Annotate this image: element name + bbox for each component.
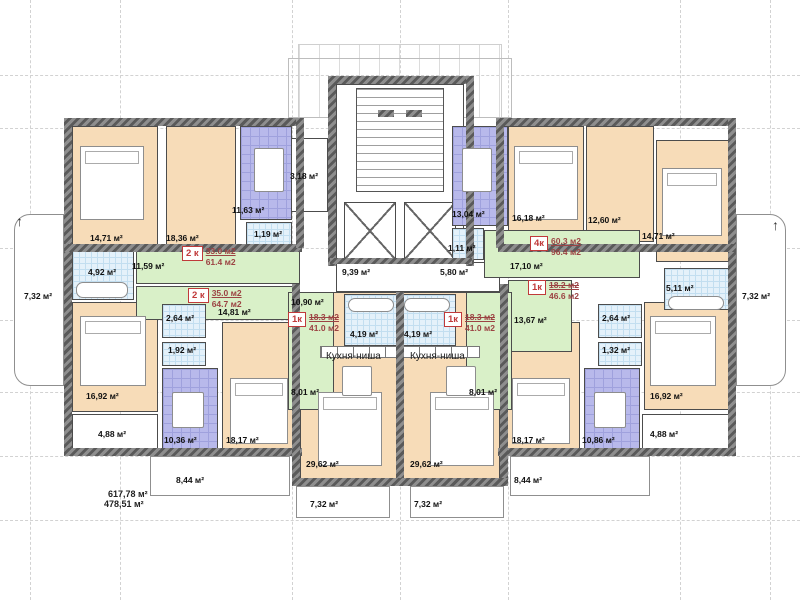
room-area-label: 16,92 м²	[650, 392, 683, 401]
room-area-label: 4,88 м²	[98, 430, 126, 439]
apartment-badge: 2 к35.0 м264.7 м2	[188, 288, 242, 309]
living-area-value: 18.3 м2	[309, 312, 339, 323]
room-area-label: 7,32 м²	[414, 500, 442, 509]
elevator-left	[344, 202, 396, 260]
bed-furniture	[80, 316, 146, 386]
apartment-type-code: 2 к	[182, 246, 203, 261]
room-area-label: 14,71 м²	[642, 232, 675, 241]
room-area-label: 12,60 м²	[588, 216, 621, 225]
apartment-area-values: 60.3 м296.4 м2	[551, 236, 581, 257]
wall-segment	[296, 118, 304, 248]
wall-segment	[406, 110, 422, 117]
room-area-label: 10,86 м²	[582, 436, 615, 445]
room-area-label: 1,32 м²	[602, 346, 630, 355]
table-furniture	[342, 366, 372, 396]
total-area-value: 96.4 м2	[551, 247, 581, 258]
room-area-label: 3,18 м²	[290, 172, 318, 181]
bed-furniture	[80, 146, 144, 220]
room-area-label: 18,17 м²	[226, 436, 259, 445]
floor-plan: 14,71 м²18,36 м²11,63 м²1,19 м²11,59 м²4…	[0, 0, 800, 600]
wall-segment	[292, 478, 508, 486]
wall-segment	[496, 118, 504, 248]
room-area-label: Кухня-ниша	[410, 352, 465, 362]
living-area-value: 33.0 м2	[206, 246, 236, 257]
bed-furniture	[514, 146, 578, 220]
apartment-badge: 1к18.2 м246.6 м2	[528, 280, 579, 301]
wall-segment	[328, 76, 336, 266]
tub-furniture	[668, 296, 724, 310]
wall-segment	[496, 118, 736, 126]
apartment-badge: 2 к33.0 м261.4 м2	[182, 246, 236, 267]
wall-segment	[64, 118, 72, 456]
grid-line-horizontal	[0, 520, 800, 521]
bed-furniture	[662, 168, 722, 236]
room-area-label: 8,44 м²	[176, 476, 204, 485]
room-area-label: 10,36 м²	[164, 436, 197, 445]
apartment-area-values: 18.2 м246.6 м2	[549, 280, 579, 301]
room-area-label: 16,92 м²	[86, 392, 119, 401]
room-area-label: 11,63 м²	[232, 206, 264, 215]
room-area-label: 16,18 м²	[512, 214, 545, 223]
room-area-label: 11,59 м²	[132, 262, 164, 271]
living-1836	[166, 126, 236, 248]
room-area-label: 2,64 м²	[166, 314, 194, 323]
wall-segment	[64, 448, 302, 456]
room-area-label: 8,01 м²	[469, 388, 497, 397]
room-area-label: 14,81 м²	[218, 308, 251, 317]
room-area-label: 10,90 м²	[291, 298, 324, 307]
room-area-label: 29,62 м²	[306, 460, 339, 469]
grid-line-vertical	[120, 0, 121, 600]
wall-segment	[330, 258, 472, 264]
apartment-type-code: 2 к	[188, 288, 209, 303]
living-area-value: 18.3 м2	[465, 312, 495, 323]
room-area-label: 2,64 м²	[602, 314, 630, 323]
table-furniture	[594, 392, 626, 428]
tub-furniture	[404, 298, 450, 312]
table-furniture	[462, 148, 492, 192]
bed-furniture	[650, 316, 716, 386]
living-area-value: 35.0 м2	[212, 288, 242, 299]
wall-segment	[64, 118, 304, 126]
living-area-value: 60.3 м2	[551, 236, 581, 247]
room-area-label: 9,39 м²	[342, 268, 370, 277]
total-area-value: 61.4 м2	[206, 257, 236, 268]
tub-furniture	[348, 298, 394, 312]
room-area-label: 1,92 м²	[168, 346, 196, 355]
tub-furniture	[76, 282, 128, 298]
room-area-label: 1,19 м²	[254, 230, 282, 239]
room-area-label: 5,11 м²	[666, 284, 694, 293]
total-area-value: 41.0 м2	[309, 323, 339, 334]
room-area-label: 7,32 м²	[310, 500, 338, 509]
apartment-type-code: 1к	[288, 312, 306, 327]
room-area-label: 4,19 м²	[404, 330, 432, 339]
room-area-label: 29,62 м²	[410, 460, 443, 469]
total-area-value: 41.0 м2	[465, 323, 495, 334]
room-area-label: 8,44 м²	[514, 476, 542, 485]
bed-furniture	[318, 392, 382, 466]
room-area-label: 18,36 м²	[166, 234, 199, 243]
apartment-badge: 1к18.3 м241.0 м2	[444, 312, 495, 333]
room-area-label: 4,19 м²	[350, 330, 378, 339]
wall-segment	[728, 118, 736, 456]
wall-segment	[498, 448, 736, 456]
room-area-label: 5,80 м²	[440, 268, 468, 277]
apartment-area-values: 18.3 м241.0 м2	[465, 312, 495, 333]
room-area-label: 4,92 м²	[88, 268, 116, 277]
stairs	[356, 88, 444, 192]
bed-furniture	[430, 392, 494, 466]
wall-segment	[328, 76, 474, 84]
total-area-label: 617,78 м²	[108, 490, 148, 499]
room-area-label: Кухня-ниша	[326, 352, 381, 362]
room-area-label: 7,32 м²	[24, 292, 52, 301]
total-area-value: 64.7 м2	[212, 299, 242, 310]
apartment-type-code: 4к	[530, 236, 548, 251]
entrance-arrow-icon: ↑	[772, 218, 779, 232]
room-area-label: 8,01 м²	[291, 388, 319, 397]
room-area-label: 18,17 м²	[512, 436, 545, 445]
wall-segment	[500, 284, 508, 486]
apartment-area-values: 35.0 м264.7 м2	[212, 288, 242, 309]
room-area-label: 4,88 м²	[650, 430, 678, 439]
entrance-arrow-icon: ↑	[16, 214, 23, 228]
apartment-area-values: 18.3 м241.0 м2	[309, 312, 339, 333]
apartment-area-values: 33.0 м261.4 м2	[206, 246, 236, 267]
apartment-type-code: 1к	[528, 280, 546, 295]
total-area-label: 478,51 м²	[104, 500, 144, 509]
apartment-badge: 1к18.3 м241.0 м2	[288, 312, 339, 333]
table-furniture	[254, 148, 284, 192]
total-area-value: 46.6 м2	[549, 291, 579, 302]
wall-segment	[396, 292, 404, 486]
living-area-value: 18.2 м2	[549, 280, 579, 291]
room-area-label: 13,04 м²	[452, 210, 485, 219]
balcony-844-left	[150, 456, 290, 496]
room-area-label: 1,11 м²	[448, 244, 476, 253]
room-area-label: 7,32 м²	[742, 292, 770, 301]
apartment-badge: 4к60.3 м296.4 м2	[530, 236, 581, 257]
room-area-label: 17,10 м²	[510, 262, 543, 271]
apartment-type-code: 1к	[444, 312, 462, 327]
wall-segment	[378, 110, 394, 117]
room-area-label: 14,71 м²	[90, 234, 123, 243]
room-area-label: 13,67 м²	[514, 316, 547, 325]
table-furniture	[172, 392, 204, 428]
